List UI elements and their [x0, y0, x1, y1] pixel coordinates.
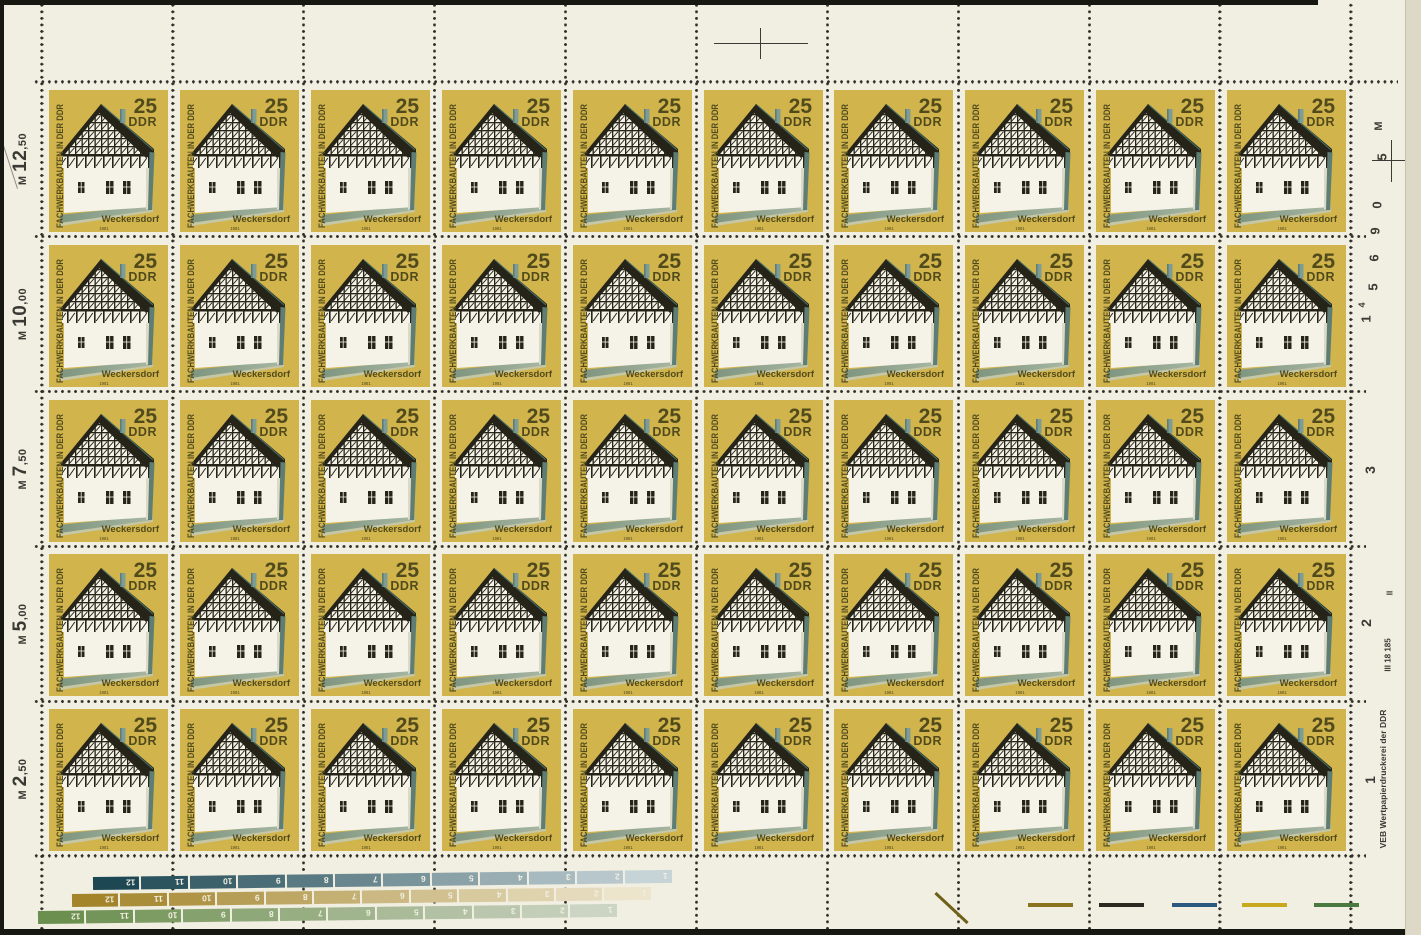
- stamp: [1227, 554, 1346, 696]
- margin-mark: III 18 185: [1384, 638, 1393, 671]
- stamp: [704, 554, 823, 696]
- stamp: [834, 90, 953, 232]
- margin-mark: 2: [1358, 619, 1374, 627]
- density-segment: 4: [480, 872, 527, 886]
- margin-mark: II: [1386, 591, 1395, 595]
- perforation-column: [1218, 2, 1221, 929]
- density-segment: 4: [425, 906, 472, 920]
- density-segment: 6: [328, 907, 375, 921]
- perforation-column: [957, 2, 960, 929]
- density-segment: 6: [362, 890, 409, 904]
- density-segment: 2: [577, 871, 624, 885]
- perforation-row: [33, 545, 1366, 548]
- perforation-row: [33, 854, 1366, 857]
- stamp: [49, 554, 168, 696]
- stamp: [573, 400, 692, 542]
- stamp: [442, 245, 561, 387]
- perforation-column: [40, 2, 43, 929]
- margin-mark: 6: [1367, 254, 1382, 261]
- perforation-row: [33, 80, 1398, 83]
- density-segment: 5: [432, 872, 479, 886]
- stamp: [311, 245, 430, 387]
- perforation-column: [564, 2, 567, 929]
- perforation-column: [826, 2, 829, 929]
- stamp: [834, 245, 953, 387]
- color-dash: [1242, 903, 1287, 907]
- color-dash: [1172, 903, 1217, 907]
- density-segment: 12: [93, 876, 140, 890]
- stamp: [965, 90, 1084, 232]
- density-segment: 11: [86, 910, 133, 924]
- density-segment: 11: [120, 893, 167, 907]
- density-segment: 8: [265, 891, 312, 905]
- density-segment: 12: [38, 910, 85, 924]
- perforation-column: [695, 2, 698, 929]
- perforation-row: [33, 235, 1366, 238]
- margin-mark: 9: [1368, 227, 1383, 234]
- density-segment: 10: [169, 892, 216, 906]
- stamp: [573, 709, 692, 851]
- stamp: [49, 400, 168, 542]
- density-segment: 9: [217, 892, 264, 906]
- stamp: [573, 90, 692, 232]
- scan-edge-top: [0, 0, 1318, 5]
- stamp: [180, 554, 299, 696]
- density-segment: 7: [314, 890, 361, 904]
- density-segment: 7: [335, 873, 382, 887]
- perforation-column: [433, 2, 436, 929]
- stamp: [180, 245, 299, 387]
- margin-mark: 1: [1362, 776, 1378, 784]
- density-segment: 2: [556, 888, 603, 902]
- margin-mark: 3: [1362, 466, 1378, 474]
- density-segment: 8: [286, 874, 333, 888]
- density-segment: 3: [473, 905, 520, 919]
- stamp: [573, 554, 692, 696]
- stamp: [965, 709, 1084, 851]
- stamp: [311, 90, 430, 232]
- stamp: [442, 90, 561, 232]
- density-segment: 3: [528, 871, 575, 885]
- density-segment: 8: [231, 908, 278, 922]
- stamp: [1096, 709, 1215, 851]
- stamp: [180, 400, 299, 542]
- stamp: [442, 400, 561, 542]
- color-bar-green: 121110987654321: [38, 904, 619, 924]
- stamp: [1096, 400, 1215, 542]
- stamp: [704, 245, 823, 387]
- stamp: [49, 245, 168, 387]
- margin-mark: 4: [1357, 302, 1367, 307]
- density-segment: 5: [411, 889, 458, 903]
- margin-value-label: M 7,50: [10, 448, 32, 489]
- density-segment: 9: [183, 909, 230, 923]
- margin-value-label: M 5,00: [10, 603, 32, 644]
- stamp: [704, 709, 823, 851]
- margin-value-label: M 10,00: [10, 288, 32, 340]
- scan-edge-left: [0, 0, 4, 935]
- margin-mark: 5: [1366, 283, 1381, 290]
- stamp: [1227, 90, 1346, 232]
- stamp: [834, 554, 953, 696]
- stamp: [704, 400, 823, 542]
- density-segment: 1: [570, 904, 617, 918]
- margin-mark: M: [1373, 121, 1385, 130]
- stamp: [573, 245, 692, 387]
- stamp-sheet-scan: 25 DDR FACHWERKBAUTEN IN DER DDR Weckers…: [0, 0, 1421, 935]
- density-segment: 6: [383, 873, 430, 887]
- stamp: [49, 90, 168, 232]
- density-segment: 2: [522, 905, 569, 919]
- perforation-row: [33, 390, 1366, 393]
- stamp: [442, 709, 561, 851]
- perforation-column: [302, 2, 305, 929]
- perforation-column: [1349, 2, 1352, 929]
- stamp: [180, 709, 299, 851]
- margin-mark: VEB Wertpapierdruckerei der DDR: [1378, 710, 1388, 849]
- color-dash: [1314, 903, 1359, 907]
- density-segment: 9: [238, 875, 285, 889]
- density-segment: 4: [459, 889, 506, 903]
- density-segment: 1: [604, 887, 651, 901]
- stamp: [1227, 709, 1346, 851]
- density-segment: 10: [135, 909, 182, 923]
- color-dash: [1028, 903, 1073, 907]
- stamp: [834, 400, 953, 542]
- sheet-right-edge: [1405, 0, 1421, 935]
- ink-stroke-diagonal: [934, 892, 968, 924]
- perforation-column: [171, 2, 174, 929]
- density-segment: 10: [190, 875, 237, 889]
- stamp: [704, 90, 823, 232]
- density-segment: 12: [72, 893, 119, 907]
- stamp: [965, 245, 1084, 387]
- perforation-column: [1088, 2, 1091, 929]
- margin-mark: 1: [1359, 315, 1374, 322]
- stamp: [965, 554, 1084, 696]
- stamp: [442, 554, 561, 696]
- stamp: [311, 554, 430, 696]
- margin-value-label: M 2,50: [10, 758, 32, 799]
- density-segment: 3: [507, 888, 554, 902]
- stamp: [311, 400, 430, 542]
- density-segment: 11: [141, 876, 188, 890]
- density-segment: 1: [625, 870, 672, 884]
- register-cross-right: [1391, 140, 1392, 182]
- register-cross-top: [760, 28, 761, 59]
- stamp: [834, 709, 953, 851]
- stamp: [1227, 400, 1346, 542]
- stamp: [1096, 245, 1215, 387]
- margin-mark: 0: [1370, 201, 1385, 208]
- scan-edge-bottom: [0, 929, 1421, 935]
- perforation-row: [33, 700, 1366, 703]
- stamp: [965, 400, 1084, 542]
- density-segment: 7: [280, 907, 327, 921]
- stamp: [180, 90, 299, 232]
- color-dash: [1099, 903, 1144, 907]
- density-segment: 5: [377, 906, 424, 920]
- stamp: [1096, 554, 1215, 696]
- stamp: [49, 709, 168, 851]
- stamp: [1096, 90, 1215, 232]
- stamp: [311, 709, 430, 851]
- stamp: [1227, 245, 1346, 387]
